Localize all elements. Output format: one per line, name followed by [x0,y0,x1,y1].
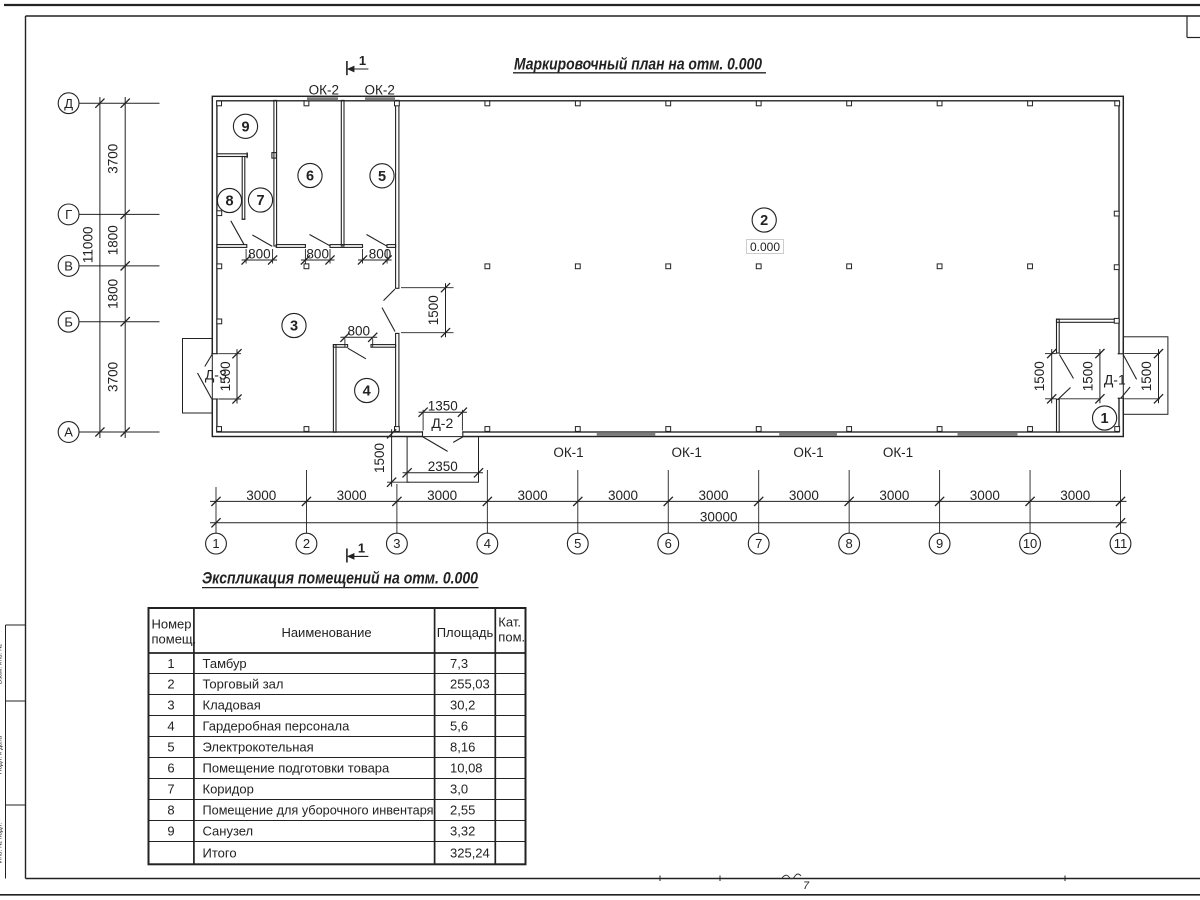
svg-text:30000: 30000 [700,509,738,524]
svg-text:800: 800 [369,246,392,261]
svg-text:3000: 3000 [427,488,457,503]
svg-text:4: 4 [484,536,491,551]
svg-text:Подп. и дата: Подп. и дата [0,735,4,774]
svg-text:Д-2: Д-2 [431,415,453,431]
svg-text:Торговый зал: Торговый зал [203,677,284,692]
svg-text:Инв. № подл.: Инв. № подл. [0,823,4,864]
svg-text:4: 4 [167,719,174,734]
svg-text:1350: 1350 [428,399,458,414]
svg-text:800: 800 [248,246,271,261]
svg-text:30,2: 30,2 [450,698,475,713]
svg-text:1: 1 [1101,411,1109,427]
svg-text:5: 5 [574,536,581,551]
svg-text:255,03: 255,03 [450,677,490,692]
svg-text:8: 8 [167,803,174,818]
svg-text:1500: 1500 [1080,361,1095,391]
svg-text:3: 3 [290,319,298,335]
svg-text:3,32: 3,32 [450,824,475,839]
svg-text:11: 11 [1114,536,1128,551]
svg-text:7: 7 [256,193,264,209]
svg-text:7,3: 7,3 [450,656,468,671]
svg-text:10: 10 [1023,536,1037,551]
svg-text:пом.: пом. [498,630,525,645]
svg-text:3000: 3000 [789,488,819,503]
svg-text:1500: 1500 [426,295,441,325]
svg-text:Площадь: Площадь [437,625,494,640]
svg-text:1800: 1800 [106,225,121,255]
svg-text:9: 9 [936,536,943,551]
svg-text:В: В [64,259,73,274]
svg-text:ОК-2: ОК-2 [309,83,339,98]
svg-text:ОК-1: ОК-1 [553,445,583,460]
svg-text:2: 2 [760,213,768,229]
svg-text:5: 5 [378,169,386,185]
svg-text:3000: 3000 [608,488,638,503]
svg-text:Г: Г [65,207,72,222]
svg-text:1500: 1500 [1032,361,1047,391]
svg-text:9: 9 [167,824,174,839]
svg-text:2,55: 2,55 [450,803,475,818]
svg-text:3000: 3000 [1060,488,1090,503]
svg-text:Номер: Номер [152,617,192,632]
svg-text:3,0: 3,0 [450,782,468,797]
svg-text:7: 7 [755,536,762,551]
svg-text:Санузел: Санузел [203,824,254,839]
svg-text:Коридор: Коридор [203,782,254,797]
svg-text:1500: 1500 [372,443,387,473]
svg-text:Взам. инв. №: Взам. инв. № [0,644,4,684]
svg-text:3000: 3000 [970,488,1000,503]
svg-text:6: 6 [167,761,174,776]
svg-text:Итого: Итого [203,846,237,861]
svg-text:5: 5 [167,740,174,755]
svg-text:Наименование: Наименование [281,625,371,640]
svg-text:1: 1 [358,541,365,556]
svg-text:3000: 3000 [337,488,367,503]
svg-text:9: 9 [241,120,249,136]
svg-text:3000: 3000 [879,488,909,503]
svg-text:8: 8 [225,194,233,210]
svg-text:3000: 3000 [518,488,548,503]
svg-text:Д: Д [64,96,73,111]
svg-text:А: А [64,425,73,440]
svg-text:ОК-2: ОК-2 [365,83,395,98]
svg-text:800: 800 [348,324,371,339]
svg-text:3: 3 [167,698,174,713]
svg-text:3: 3 [393,536,400,551]
svg-text:2: 2 [167,677,174,692]
svg-text:6: 6 [306,169,314,185]
svg-text:1800: 1800 [106,279,121,309]
svg-text:Экспликация помещений на отм.: Экспликация помещений на отм. 0.000 [202,568,478,587]
svg-text:3000: 3000 [698,488,728,503]
svg-text:3000: 3000 [246,488,276,503]
svg-text:2: 2 [303,536,310,551]
svg-text:ОК-1: ОК-1 [793,445,823,460]
svg-text:Кат.: Кат. [498,615,521,630]
svg-text:1: 1 [359,53,366,68]
svg-text:8,16: 8,16 [450,740,475,755]
svg-text:Кладовая: Кладовая [203,698,261,713]
svg-text:5,6: 5,6 [450,719,468,734]
svg-text:2350: 2350 [428,459,458,474]
svg-text:Тамбур: Тамбур [203,656,247,671]
svg-text:1: 1 [212,536,219,551]
svg-text:Б: Б [64,314,73,329]
svg-text:7: 7 [803,880,810,892]
svg-text:800: 800 [306,246,329,261]
svg-text:11000: 11000 [80,227,95,264]
svg-text:3700: 3700 [106,362,121,392]
svg-text:Электрокотельная: Электрокотельная [203,740,314,755]
svg-text:помещ.: помещ. [152,632,197,647]
svg-text:1500: 1500 [218,361,233,391]
svg-text:1500: 1500 [1139,361,1154,391]
svg-text:7: 7 [167,782,174,797]
svg-text:0.000: 0.000 [750,240,780,254]
svg-text:Д-1: Д-1 [1104,371,1126,387]
svg-text:ОК-1: ОК-1 [672,445,702,460]
svg-text:Гардеробная персонала: Гардеробная персонала [203,719,351,734]
svg-text:10,08: 10,08 [450,761,483,776]
svg-text:8: 8 [846,536,853,551]
svg-text:Помещение для уборочного инвен: Помещение для уборочного инвентаря [203,803,434,818]
svg-text:Помещение подготовки товара: Помещение подготовки товара [203,761,391,776]
svg-text:6: 6 [665,536,672,551]
svg-text:ОК-1: ОК-1 [883,445,913,460]
svg-text:1: 1 [167,656,174,671]
svg-text:325,24: 325,24 [450,846,490,861]
svg-text:Маркировочный план на отм. 0.0: Маркировочный план на отм. 0.000 [514,54,762,73]
svg-text:3700: 3700 [106,144,121,174]
svg-text:4: 4 [363,384,371,400]
